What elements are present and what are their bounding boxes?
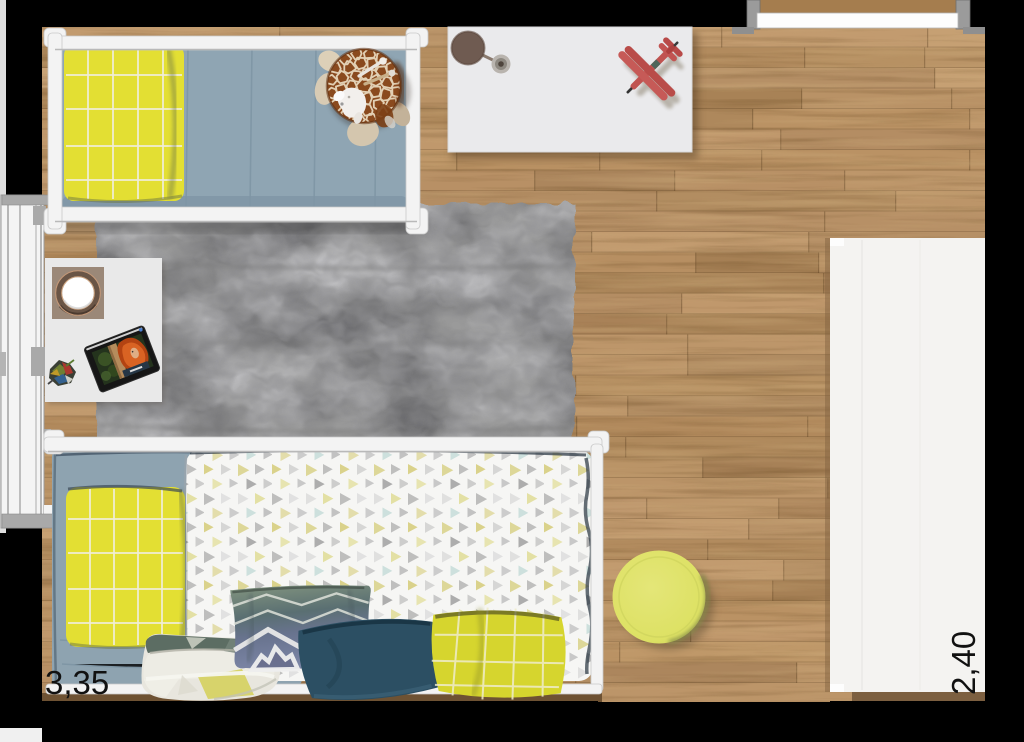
svg-text:2,40: 2,40 [945,631,982,695]
svg-text:3,35: 3,35 [45,664,109,701]
